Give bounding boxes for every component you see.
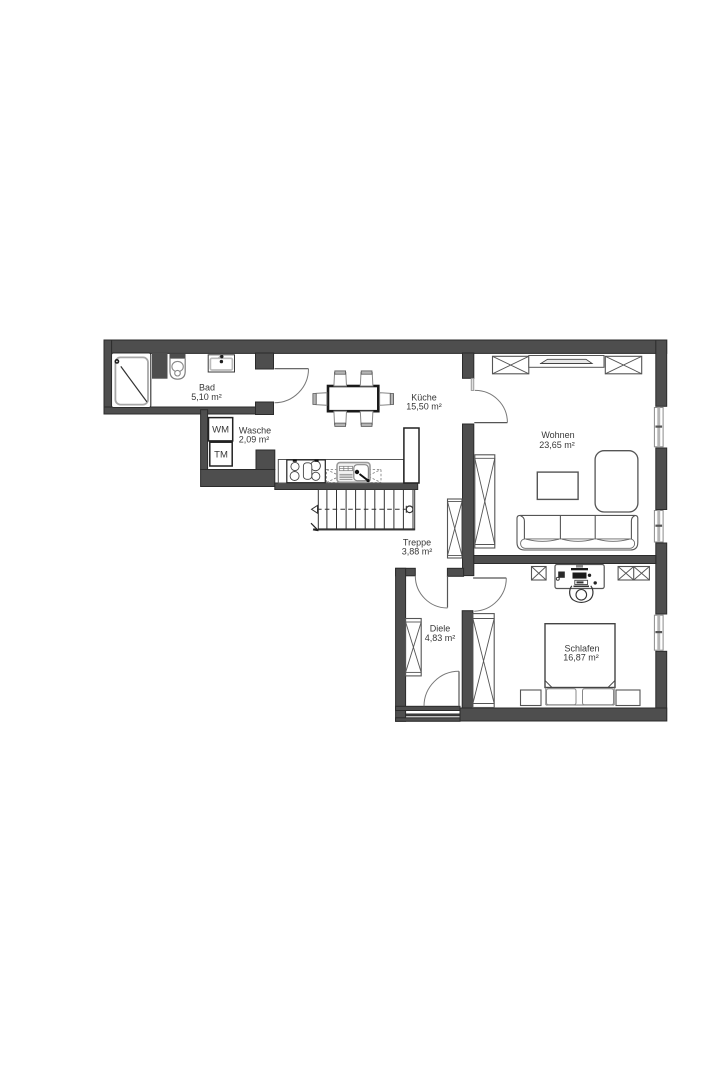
svg-text:2,09 m²: 2,09 m² — [239, 434, 270, 444]
svg-text:Diele: Diele — [430, 624, 451, 634]
svg-text:Wohnen: Wohnen — [541, 430, 574, 440]
svg-text:3,88 m²: 3,88 m² — [402, 547, 433, 557]
svg-text:WM: WM — [212, 425, 229, 436]
svg-text:TM: TM — [214, 450, 228, 461]
svg-text:23,65 m²: 23,65 m² — [539, 440, 575, 450]
svg-text:15,50 m²: 15,50 m² — [406, 402, 442, 412]
svg-text:5,10 m²: 5,10 m² — [191, 392, 222, 402]
svg-text:16,87 m²: 16,87 m² — [563, 653, 599, 663]
svg-text:4,83 m²: 4,83 m² — [425, 633, 456, 643]
